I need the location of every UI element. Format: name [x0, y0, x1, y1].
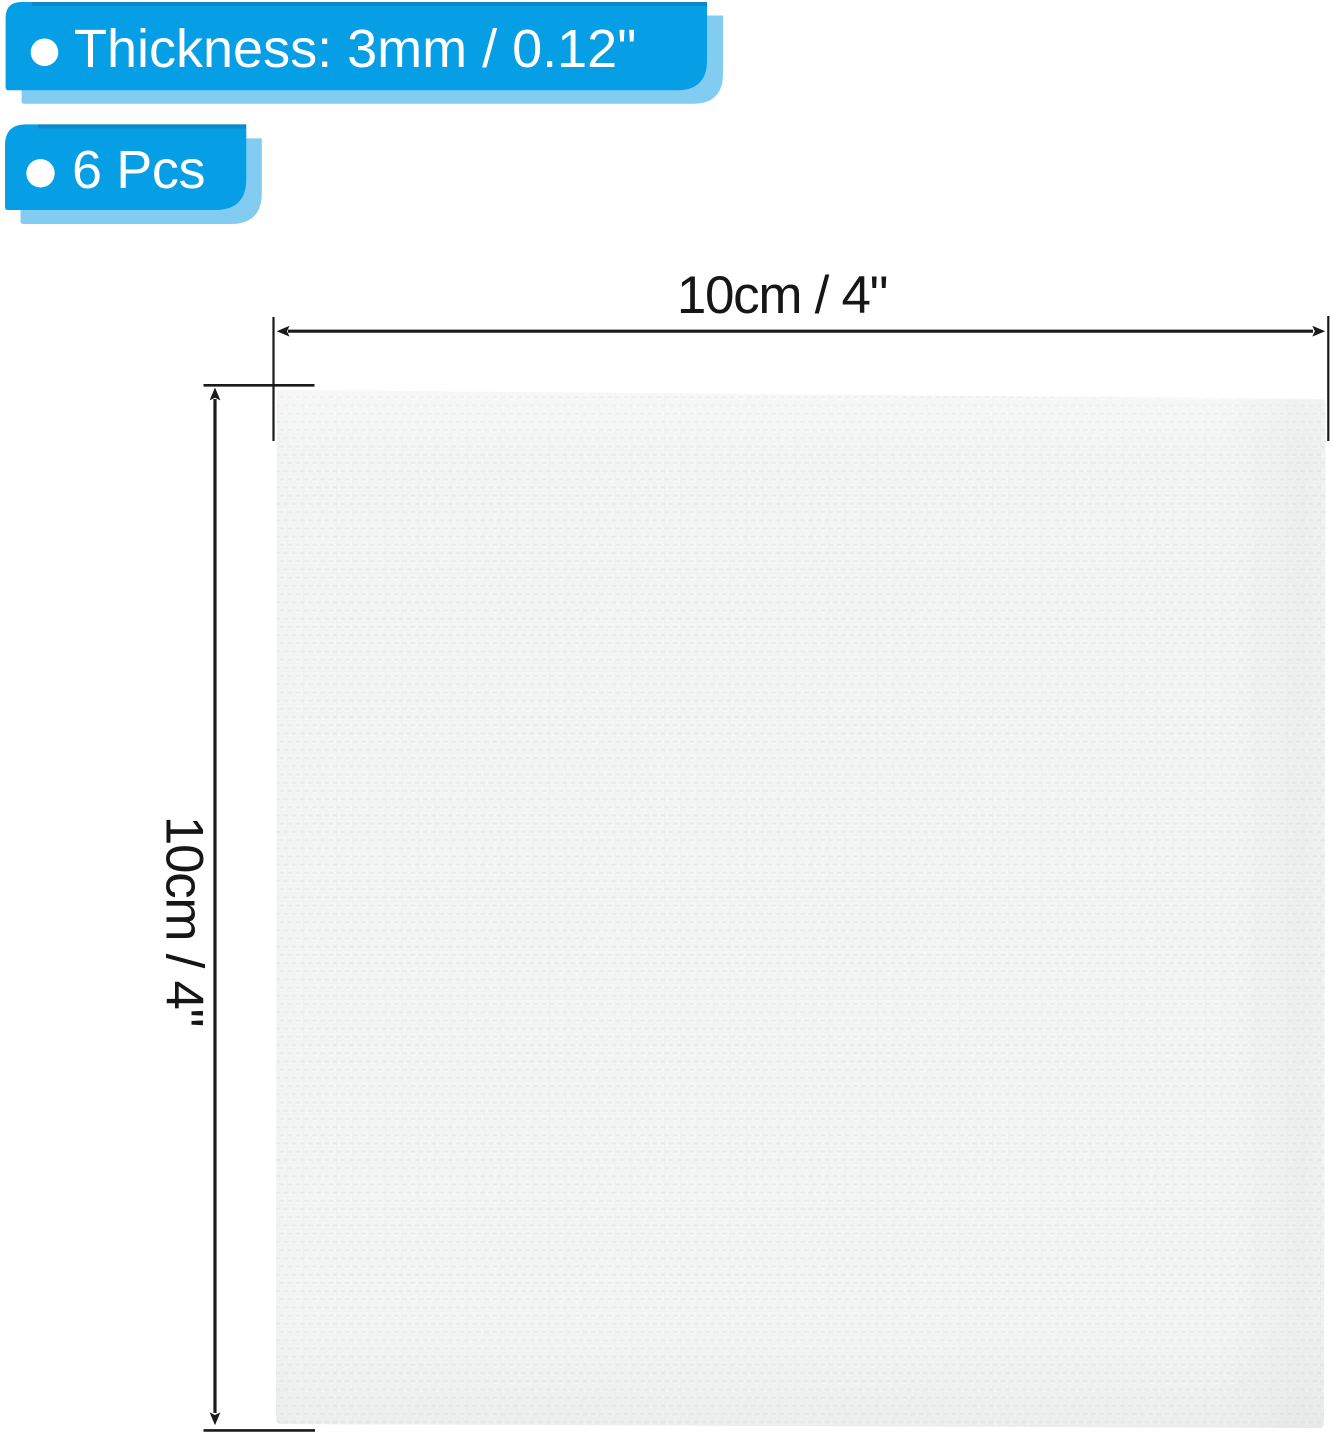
svg-text:6 Pcs: 6 Pcs — [72, 140, 205, 200]
svg-text:10cm / 4": 10cm / 4" — [677, 266, 887, 325]
svg-text:Thickness: 3mm / 0.12": Thickness: 3mm / 0.12" — [74, 19, 636, 79]
svg-text:10cm / 4": 10cm / 4" — [155, 816, 214, 1026]
